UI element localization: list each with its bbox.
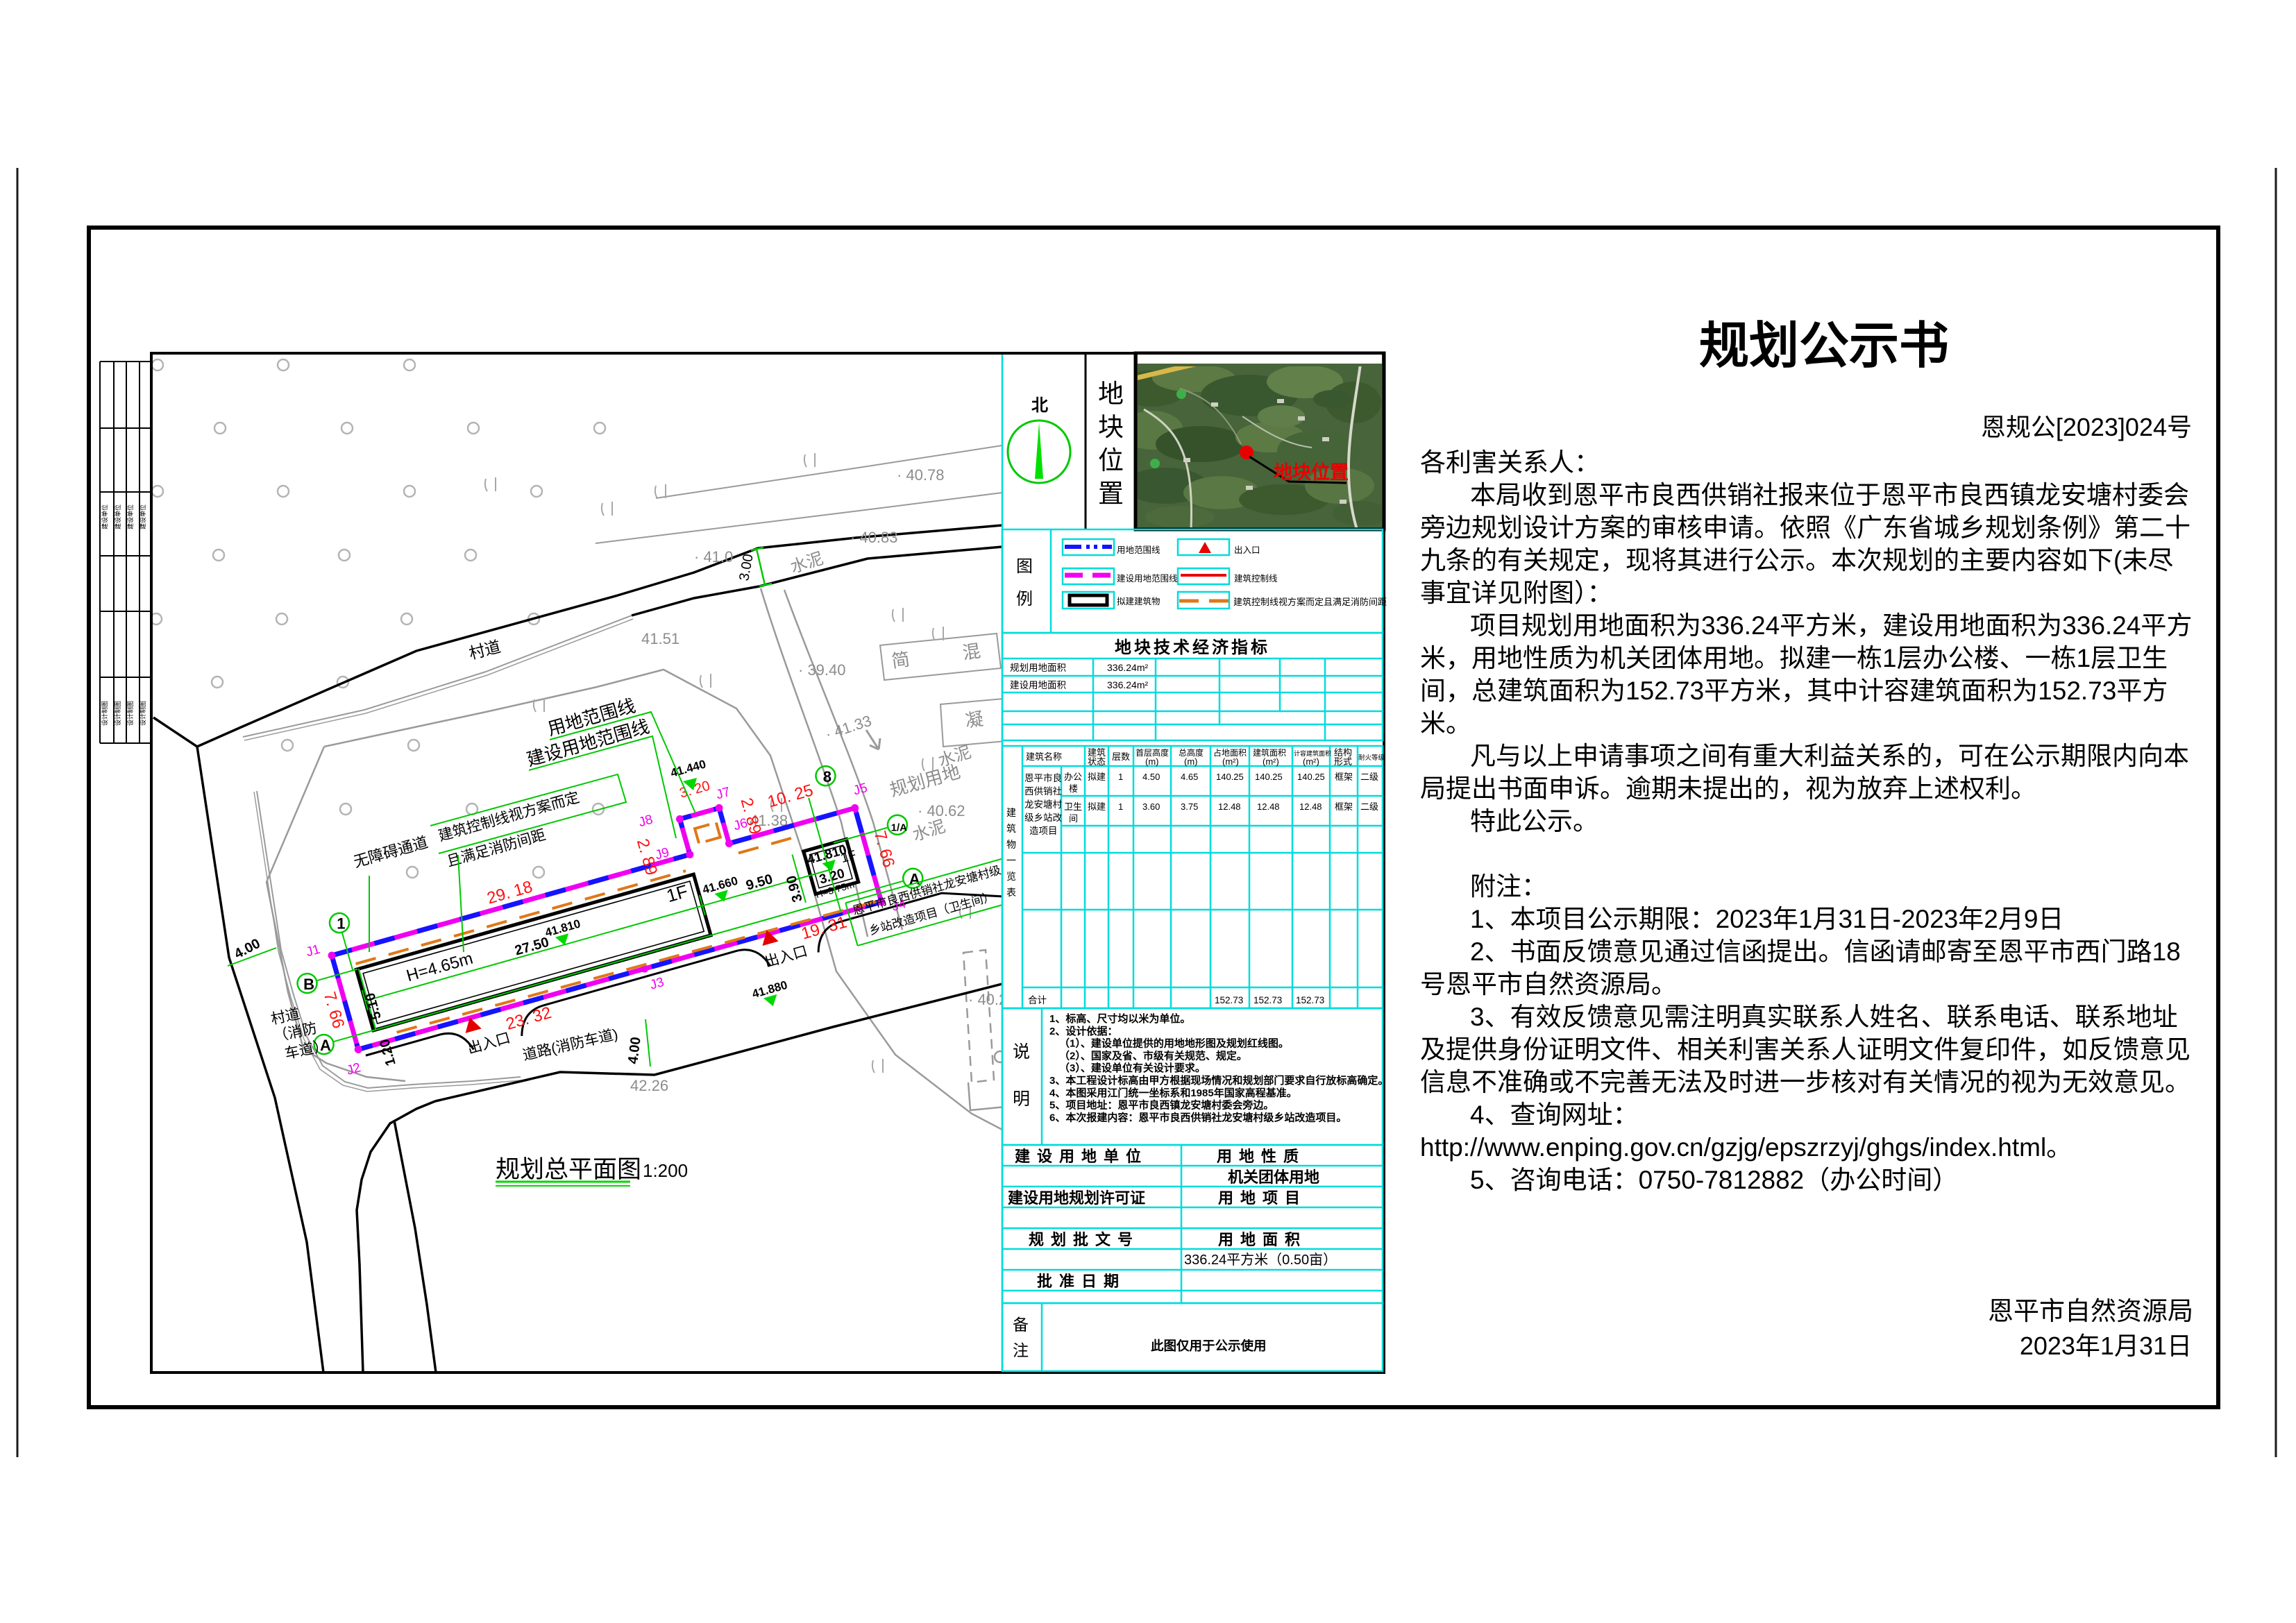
svg-text:3、有效反馈意见需注明真实联系人姓名、联系电话、联系地址: 3、有效反馈意见需注明真实联系人姓名、联系电话、联系地址 [1470, 1003, 2178, 1031]
svg-text:1、标高、尺寸均以米为单位。: 1、标高、尺寸均以米为单位。 [1049, 1012, 1190, 1025]
svg-text:图: 图 [1016, 557, 1033, 576]
svg-text:4、查询网址：: 4、查询网址： [1470, 1101, 1639, 1129]
svg-text:规划用地面积: 规划用地面积 [1010, 663, 1066, 673]
svg-text:140.25: 140.25 [1297, 772, 1325, 782]
svg-text:2、书面反馈意见通过信函提出。信函请邮寄至恩平市西门路18: 2、书面反馈意见通过信函提出。信函请邮寄至恩平市西门路18 [1470, 937, 2181, 966]
svg-text:建设单位: 建设单位 [126, 504, 134, 529]
svg-text:间: 间 [1069, 813, 1078, 824]
svg-text:建设单位: 建设单位 [139, 504, 146, 529]
svg-text:42.26: 42.26 [630, 1077, 668, 1094]
svg-text:336.24m²: 336.24m² [1107, 662, 1148, 673]
svg-text:用地面积: 用地面积 [1218, 1231, 1307, 1248]
svg-text:4.65: 4.65 [1181, 772, 1198, 782]
svg-text:140.25: 140.25 [1216, 772, 1244, 782]
svg-text:混: 混 [961, 640, 982, 663]
svg-text:(m²): (m²) [1303, 756, 1319, 767]
svg-text:152.73: 152.73 [1215, 995, 1243, 1005]
svg-text:米。: 米。 [1420, 709, 1471, 738]
svg-text:5、项目地址：恩平市良西镇龙安塘村委会旁边。: 5、项目地址：恩平市良西镇龙安塘村委会旁边。 [1049, 1099, 1274, 1112]
svg-text:旁边规划设计方案的审核申请。依照《广东省城乡规划条例》第二十: 旁边规划设计方案的审核申请。依照《广东省城乡规划条例》第二十 [1420, 513, 2191, 542]
svg-text:级乡站改: 级乡站改 [1024, 813, 1062, 823]
svg-text:建设用地单位: 建设用地单位 [1015, 1148, 1148, 1165]
svg-text:用地性质: 用地性质 [1217, 1148, 1306, 1165]
svg-text:（1）、建设单位提供的用地地形图及规划红线图。: （1）、建设单位提供的用地地形图及规划红线图。 [1059, 1037, 1289, 1050]
svg-text:1: 1 [1118, 801, 1123, 812]
svg-text:1:200: 1:200 [643, 1160, 688, 1181]
svg-text:层数: 层数 [1112, 751, 1130, 762]
svg-text:12.48: 12.48 [1218, 801, 1241, 812]
svg-text:号恩平市自然资源局。: 号恩平市自然资源局。 [1420, 970, 1677, 999]
svg-text:建设单位: 建设单位 [114, 504, 121, 529]
svg-text:拟建建筑物: 拟建建筑物 [1117, 596, 1160, 606]
svg-text:块: 块 [1098, 413, 1124, 441]
svg-text:状态: 状态 [1088, 756, 1106, 767]
svg-text:各利害关系人：: 各利害关系人： [1420, 448, 1600, 477]
svg-text:地块位置: 地块位置 [1274, 461, 1349, 483]
svg-text:米，用地性质为机关团体用地。拟建一栋1层办公楼、一栋1层卫生: 米，用地性质为机关团体用地。拟建一栋1层办公楼、一栋1层卫生 [1420, 644, 2168, 672]
svg-text:用地范围线: 用地范围线 [1117, 545, 1160, 555]
svg-text:机关团体用地: 机关团体用地 [1228, 1169, 1319, 1186]
svg-text:二级: 二级 [1360, 772, 1378, 782]
svg-text:办公: 办公 [1064, 772, 1082, 782]
svg-text:建: 建 [1006, 807, 1016, 818]
svg-text:出入口: 出入口 [1234, 545, 1260, 555]
svg-text:位: 位 [1098, 446, 1124, 475]
svg-text:建筑名称: 建筑名称 [1026, 751, 1062, 762]
svg-text:凡与以上申请事项之间有重大利益关系的，可在公示期限内向本: 凡与以上申请事项之间有重大利益关系的，可在公示期限内向本 [1470, 742, 2189, 770]
svg-text:龙安塘村: 龙安塘村 [1024, 799, 1062, 810]
svg-text:（3）、建设单位有关设计要求。: （3）、建设单位有关设计要求。 [1059, 1062, 1206, 1074]
svg-text:(m²): (m²) [1222, 756, 1239, 767]
svg-text:6、本次报建内容：恩平市良西供销社龙安塘村级乡站改造项目。: 6、本次报建内容：恩平市良西供销社龙安塘村级乡站改造项目。 [1049, 1111, 1347, 1123]
svg-text:2、设计依据：: 2、设计依据： [1049, 1025, 1117, 1037]
svg-text:152.73: 152.73 [1296, 995, 1324, 1005]
svg-text:拟建: 拟建 [1088, 772, 1106, 782]
svg-text:筑: 筑 [1006, 823, 1016, 834]
svg-text:336.24m²: 336.24m² [1107, 679, 1148, 690]
svg-text:规划批文号: 规划批文号 [1029, 1231, 1140, 1248]
svg-text:5、咨询电话：0750-7812882（办公时间）: 5、咨询电话：0750-7812882（办公时间） [1470, 1166, 1958, 1194]
svg-text:项目规划用地面积为336.24平方米，建设用地面积为336.: 项目规划用地面积为336.24平方米，建设用地面积为336.24平方 [1470, 611, 2192, 640]
svg-text:（2）、国家及省、市级有关规范、规定。: （2）、国家及省、市级有关规范、规定。 [1059, 1049, 1247, 1062]
svg-text:备: 备 [1013, 1316, 1029, 1334]
svg-text:耐火等级: 耐火等级 [1358, 754, 1385, 762]
svg-text:· 40.62: · 40.62 [918, 802, 965, 819]
svg-text:1: 1 [1118, 772, 1123, 782]
svg-text:卫生: 卫生 [1064, 801, 1082, 812]
svg-text:设计制图: 设计制图 [126, 701, 134, 726]
svg-text:览: 览 [1006, 871, 1016, 882]
svg-text:1、本项目公示期限：2023年1月31日-2023年2月9日: 1、本项目公示期限：2023年1月31日-2023年2月9日 [1470, 905, 2063, 933]
svg-text:建设用地规划许可证: 建设用地规划许可证 [1008, 1189, 1145, 1207]
svg-text:336.24平方米（0.50亩）: 336.24平方米（0.50亩） [1184, 1252, 1337, 1268]
svg-text:12.48: 12.48 [1299, 801, 1322, 812]
svg-text:建设用地范围线: 建设用地范围线 [1117, 573, 1178, 584]
svg-text:九条的有关规定，现将其进行公示。本次规划的主要内容如下(未尽: 九条的有关规定，现将其进行公示。本次规划的主要内容如下(未尽 [1420, 546, 2173, 575]
svg-text:物: 物 [1006, 839, 1016, 850]
svg-text:2023年1月31日: 2023年1月31日 [2020, 1332, 2192, 1360]
svg-text:41.51: 41.51 [641, 630, 679, 647]
svg-text:例: 例 [1016, 590, 1033, 609]
svg-text:附注：: 附注： [1470, 872, 1547, 901]
svg-text:恩平市自然资源局: 恩平市自然资源局 [1988, 1297, 2193, 1325]
svg-text:批准日期: 批准日期 [1037, 1273, 1126, 1290]
svg-text:(m): (m) [1145, 756, 1159, 767]
svg-text:间，总建筑面积为152.73平方米，其中计容建筑面积为152: 间，总建筑面积为152.73平方米，其中计容建筑面积为152.73平方 [1420, 677, 2168, 705]
svg-text:拟建: 拟建 [1088, 801, 1106, 812]
svg-text:(m): (m) [1184, 756, 1198, 767]
svg-text:3、本工程设计标高由甲方根据现场情况和规划部门要求自行放标高: 3、本工程设计标高由甲方根据现场情况和规划部门要求自行放标高确定。 [1049, 1074, 1388, 1087]
svg-text:表: 表 [1006, 887, 1016, 898]
svg-text:3.60: 3.60 [1142, 801, 1160, 812]
svg-text:(m²): (m²) [1263, 756, 1279, 767]
svg-text:地块技术经济指标: 地块技术经济指标 [1115, 638, 1270, 657]
svg-text:西供销社: 西供销社 [1024, 786, 1062, 797]
svg-text:4.00: 4.00 [625, 1036, 644, 1064]
svg-text:局提出书面申诉。逾期未提出的，视为放弃上述权利。: 局提出书面申诉。逾期未提出的，视为放弃上述权利。 [1420, 774, 2036, 803]
svg-text:用地项目: 用地项目 [1218, 1189, 1307, 1207]
svg-text:造项目: 造项目 [1029, 826, 1058, 836]
svg-text:· 39.40: · 39.40 [798, 661, 846, 679]
svg-text:北: 北 [1031, 396, 1048, 415]
svg-text:1: 1 [337, 915, 345, 933]
svg-text:特此公示。: 特此公示。 [1470, 807, 1598, 835]
svg-text:4、本图采用江门统一坐标系和1985年国家高程基准。: 4、本图采用江门统一坐标系和1985年国家高程基准。 [1049, 1087, 1297, 1099]
svg-text:规划总平面图: 规划总平面图 [496, 1156, 641, 1183]
svg-text:形式: 形式 [1334, 756, 1352, 767]
svg-text:事宜详见附图）：: 事宜详见附图）： [1420, 579, 1613, 607]
svg-text:152.73: 152.73 [1253, 995, 1282, 1005]
svg-text:框架: 框架 [1335, 772, 1353, 782]
svg-text:8: 8 [823, 768, 832, 785]
svg-text:本局收到恩平市良西供销社报来位于恩平市良西镇龙安塘村委会: 本局收到恩平市良西供销社报来位于恩平市良西镇龙安塘村委会 [1470, 481, 2189, 509]
svg-text:置: 置 [1098, 479, 1124, 508]
svg-text:· 40.83: · 40.83 [850, 529, 898, 546]
svg-text:建筑控制线视方案而定且满足消防间距: 建筑控制线视方案而定且满足消防间距 [1233, 597, 1387, 607]
svg-text:说: 说 [1013, 1042, 1030, 1062]
svg-text:1/A: 1/A [891, 822, 908, 833]
svg-text:规划公示书: 规划公示书 [1699, 318, 1949, 374]
svg-text:明: 明 [1013, 1089, 1030, 1109]
svg-text:建筑控制线: 建筑控制线 [1234, 573, 1278, 584]
svg-text:设计制图: 设计制图 [101, 701, 108, 726]
svg-text:140.25: 140.25 [1255, 772, 1283, 782]
svg-text:建设用地面积: 建设用地面积 [1010, 680, 1066, 690]
svg-text:二级: 二级 [1360, 801, 1378, 812]
svg-text:12.48: 12.48 [1257, 801, 1280, 812]
svg-text:凝: 凝 [964, 708, 985, 731]
svg-text:设计制图: 设计制图 [114, 701, 121, 726]
svg-text:http://www.enping.gov.cn/gzjg/: http://www.enping.gov.cn/gzjg/epszrzyj/g… [1420, 1133, 2072, 1162]
svg-text:4.50: 4.50 [1142, 772, 1160, 782]
svg-text:· 40.78: · 40.78 [897, 466, 945, 484]
svg-text:3.75: 3.75 [1181, 801, 1198, 812]
svg-text:注: 注 [1013, 1341, 1029, 1359]
svg-text:框架: 框架 [1335, 801, 1353, 812]
svg-text:一: 一 [1006, 855, 1016, 866]
svg-text:恩平市良: 恩平市良 [1024, 772, 1062, 783]
svg-text:B: B [303, 976, 314, 993]
svg-text:设计制图: 设计制图 [139, 701, 146, 726]
svg-text:信息不准确或不完善无法及时进一步核对有关情况的视为无效意见。: 信息不准确或不完善无法及时进一步核对有关情况的视为无效意见。 [1420, 1068, 2191, 1096]
svg-text:楼: 楼 [1069, 783, 1078, 794]
svg-text:及提供身份证明文件、相关利害关系人证明文件复印件，如反馈意见: 及提供身份证明文件、相关利害关系人证明文件复印件，如反馈意见 [1420, 1035, 2191, 1064]
svg-text:此图仅用于公示使用: 此图仅用于公示使用 [1151, 1339, 1267, 1353]
svg-text:合计: 合计 [1028, 995, 1047, 1005]
svg-text:简: 简 [890, 649, 911, 672]
svg-text:地: 地 [1098, 380, 1124, 408]
svg-text:恩规公[2023]024号: 恩规公[2023]024号 [1981, 413, 2192, 441]
svg-text:建设单位: 建设单位 [101, 504, 108, 529]
svg-text:· 41.0: · 41.0 [694, 548, 733, 566]
